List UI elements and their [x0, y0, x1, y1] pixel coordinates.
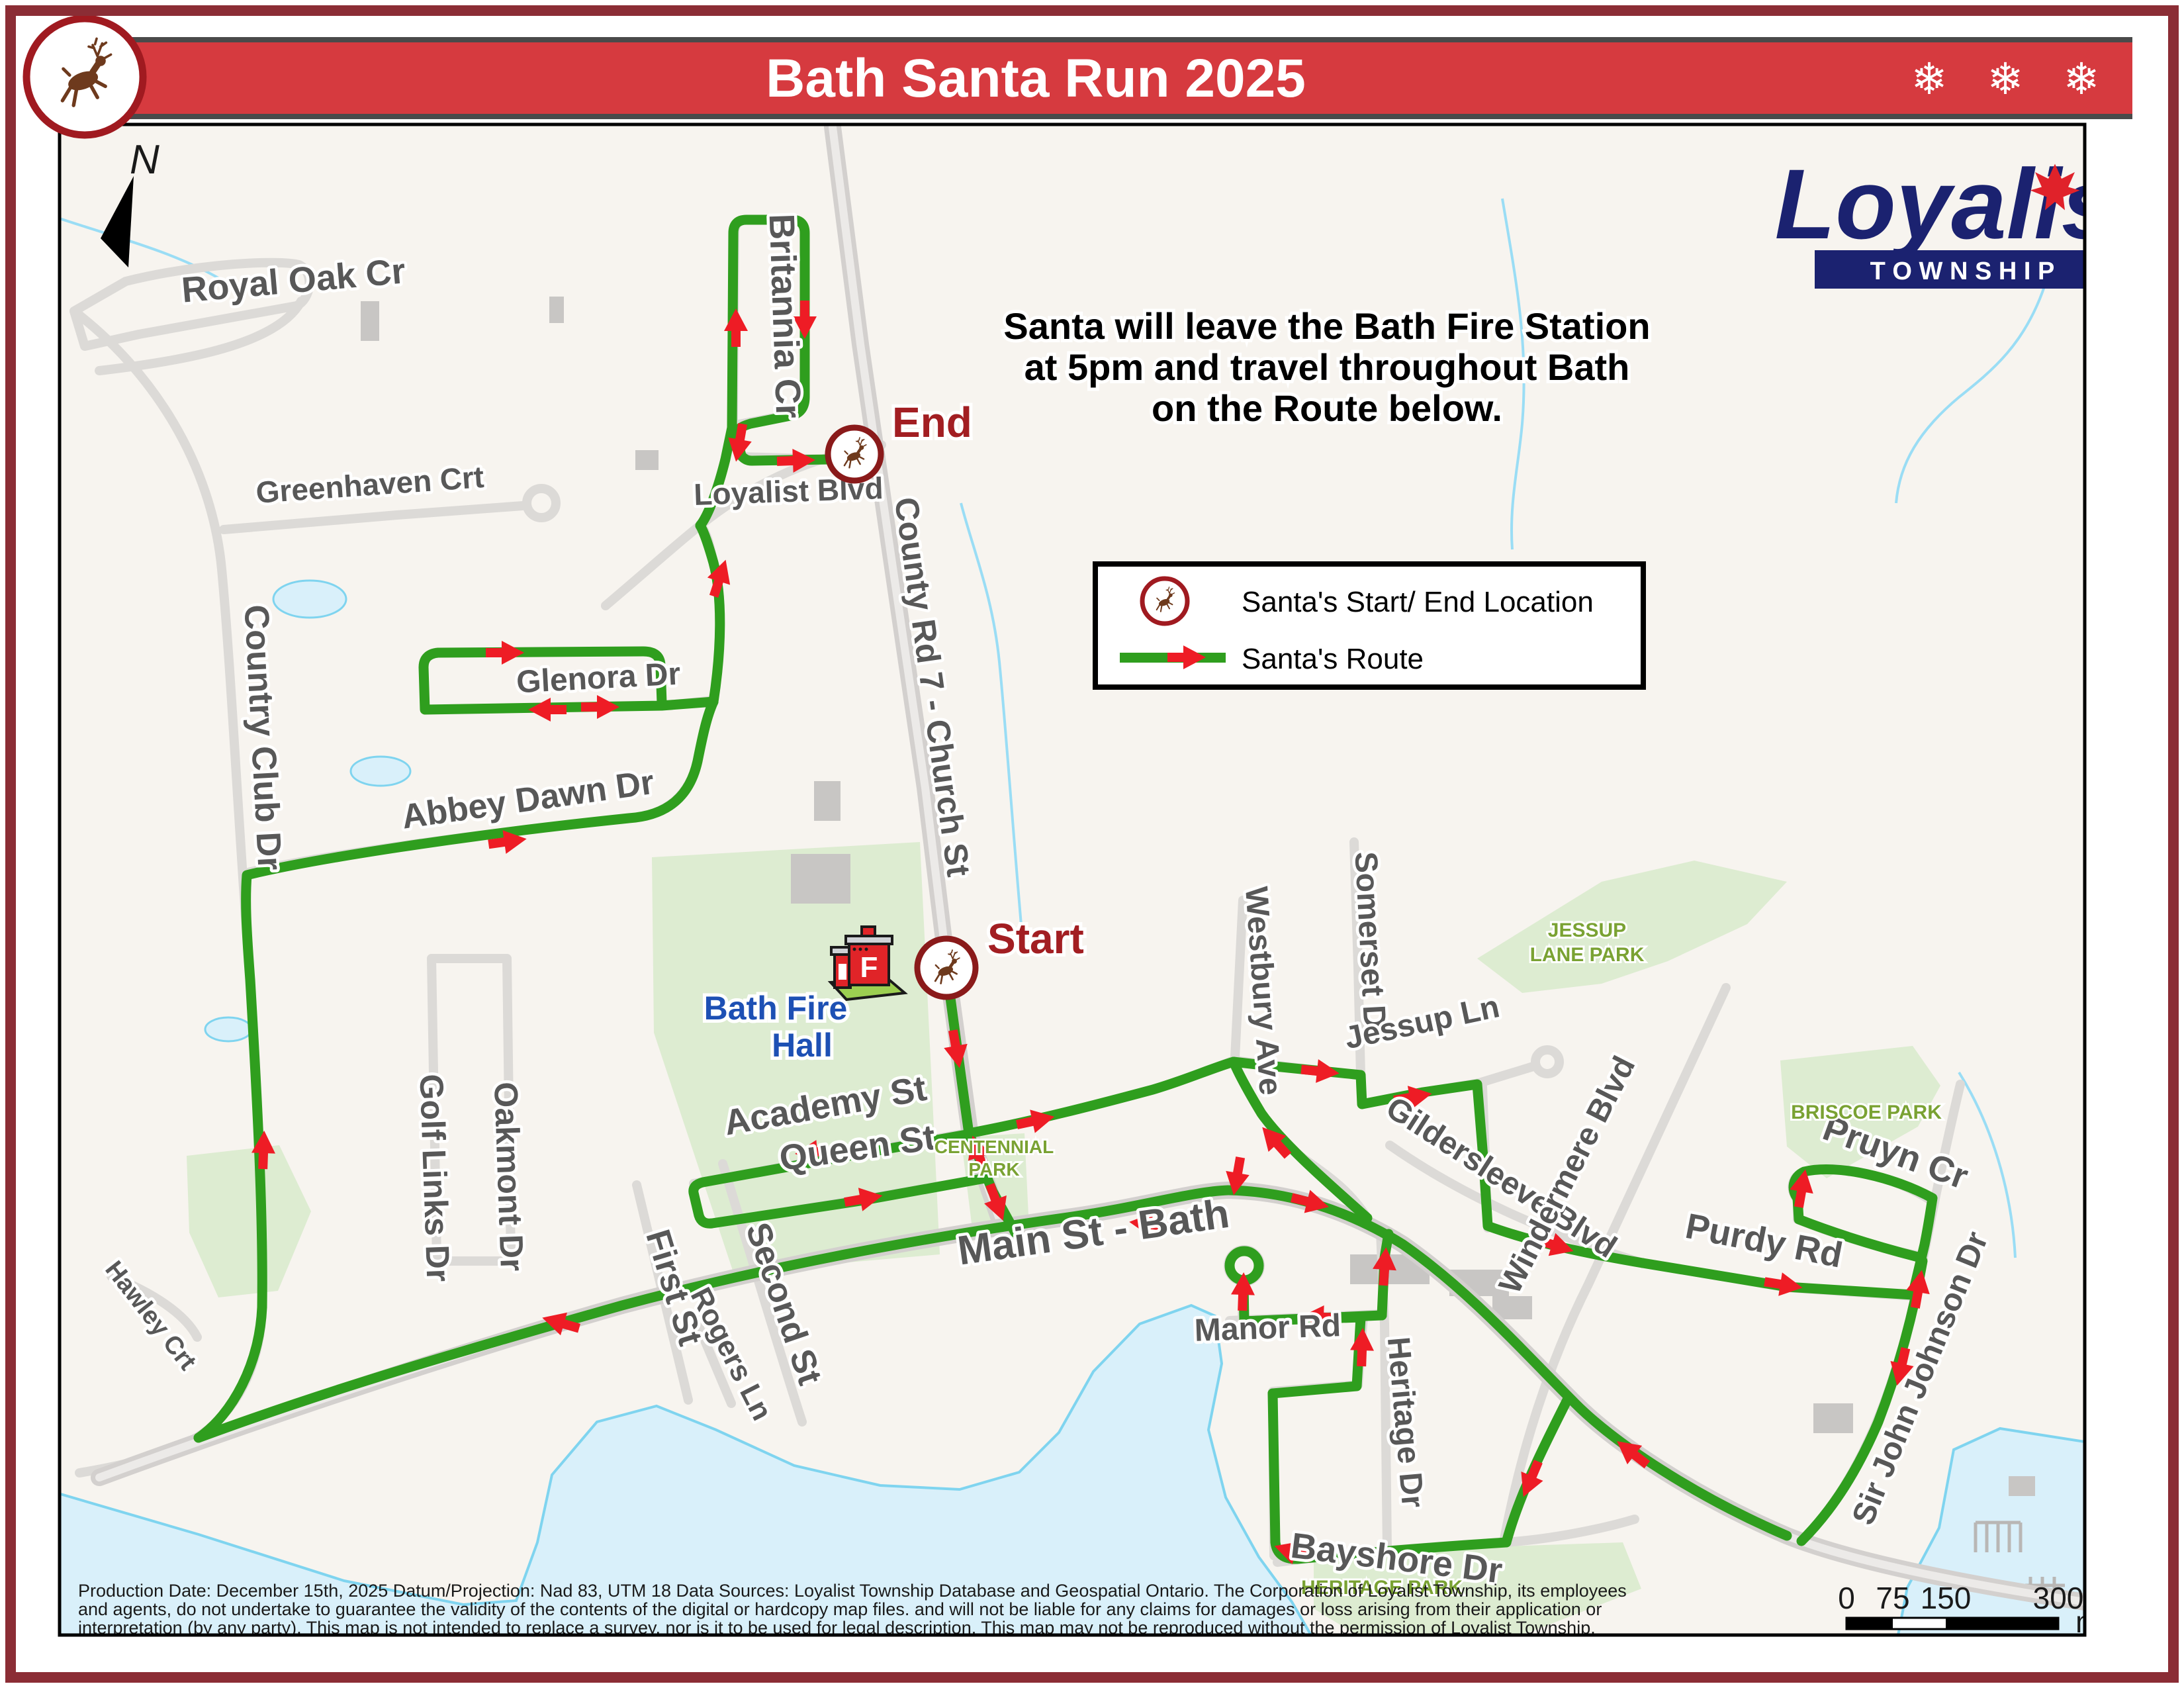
svg-text:150: 150: [1921, 1581, 1972, 1615]
svg-text:and agents, do not undertake t: and agents, do not undertake to guarante…: [78, 1599, 1602, 1619]
svg-text:75: 75: [1876, 1581, 1909, 1615]
legend: Santa's Start/ End Location Santa's Rout…: [1095, 564, 1643, 687]
end-label: End: [892, 399, 972, 446]
park-label: BRISCOE PARK: [1791, 1102, 1942, 1123]
start-label: Start: [987, 915, 1084, 962]
page: { "header": { "title": "Bath Santa Run 2…: [0, 0, 2184, 1688]
street-label: Manor Rd: [1194, 1308, 1342, 1348]
svg-text:at 5pm and travel throughout B: at 5pm and travel throughout Bath: [1024, 346, 1630, 388]
svg-text:Santa will leave the Bath Fire: Santa will leave the Bath Fire Station: [1003, 305, 1650, 347]
legend-item-route: Santa's Route: [1242, 643, 1424, 675]
header: Bath Santa Run 2025 ❄ ❄ ❄: [26, 19, 2132, 135]
reindeer-logo: [26, 19, 143, 135]
footer-disclaimer: Production Date: December 15th, 2025 Dat…: [78, 1581, 1627, 1638]
fire-icon-letter: F: [860, 951, 878, 984]
township-name: Loyalist: [1775, 148, 2154, 259]
park-label: LANE PARK: [1530, 944, 1645, 966]
township-sub: T O W N S H I P: [1870, 258, 2055, 285]
park-label: PARK: [968, 1159, 1019, 1180]
legend-item-start-end: Santa's Start/ End Location: [1242, 586, 1594, 618]
snowflake-icon: ❄: [2063, 54, 2099, 103]
snowflake-icon: ❄: [1987, 54, 2023, 103]
street-label: Golf Links Dr: [413, 1074, 457, 1283]
township-logo: Loyalist T O W N S H I P: [1775, 148, 2154, 289]
page-title: Bath Santa Run 2025: [766, 48, 1306, 109]
north-label: N: [130, 137, 159, 183]
svg-text:on the Route below.: on the Route below.: [1152, 387, 1502, 429]
park-label: CENTENNIAL: [934, 1137, 1054, 1157]
svg-text:Production Date: December 15th: Production Date: December 15th, 2025 Dat…: [78, 1581, 1627, 1601]
snowflake-icon: ❄: [1911, 54, 1947, 103]
park-label: JESSUP: [1548, 919, 1626, 941]
street-label: Britannia Cr: [762, 213, 809, 419]
fire-hall-label-1: Bath Fire: [704, 990, 848, 1027]
map-canvas: Royal Oak CrGreenhaven CrtCountry Club D…: [0, 0, 2184, 1688]
fire-hall-label-2: Hall: [772, 1027, 833, 1064]
svg-text:0: 0: [1838, 1581, 1855, 1615]
map: Royal Oak CrGreenhaven CrtCountry Club D…: [58, 124, 2154, 1639]
street-label: Oakmont Dr: [487, 1081, 531, 1272]
